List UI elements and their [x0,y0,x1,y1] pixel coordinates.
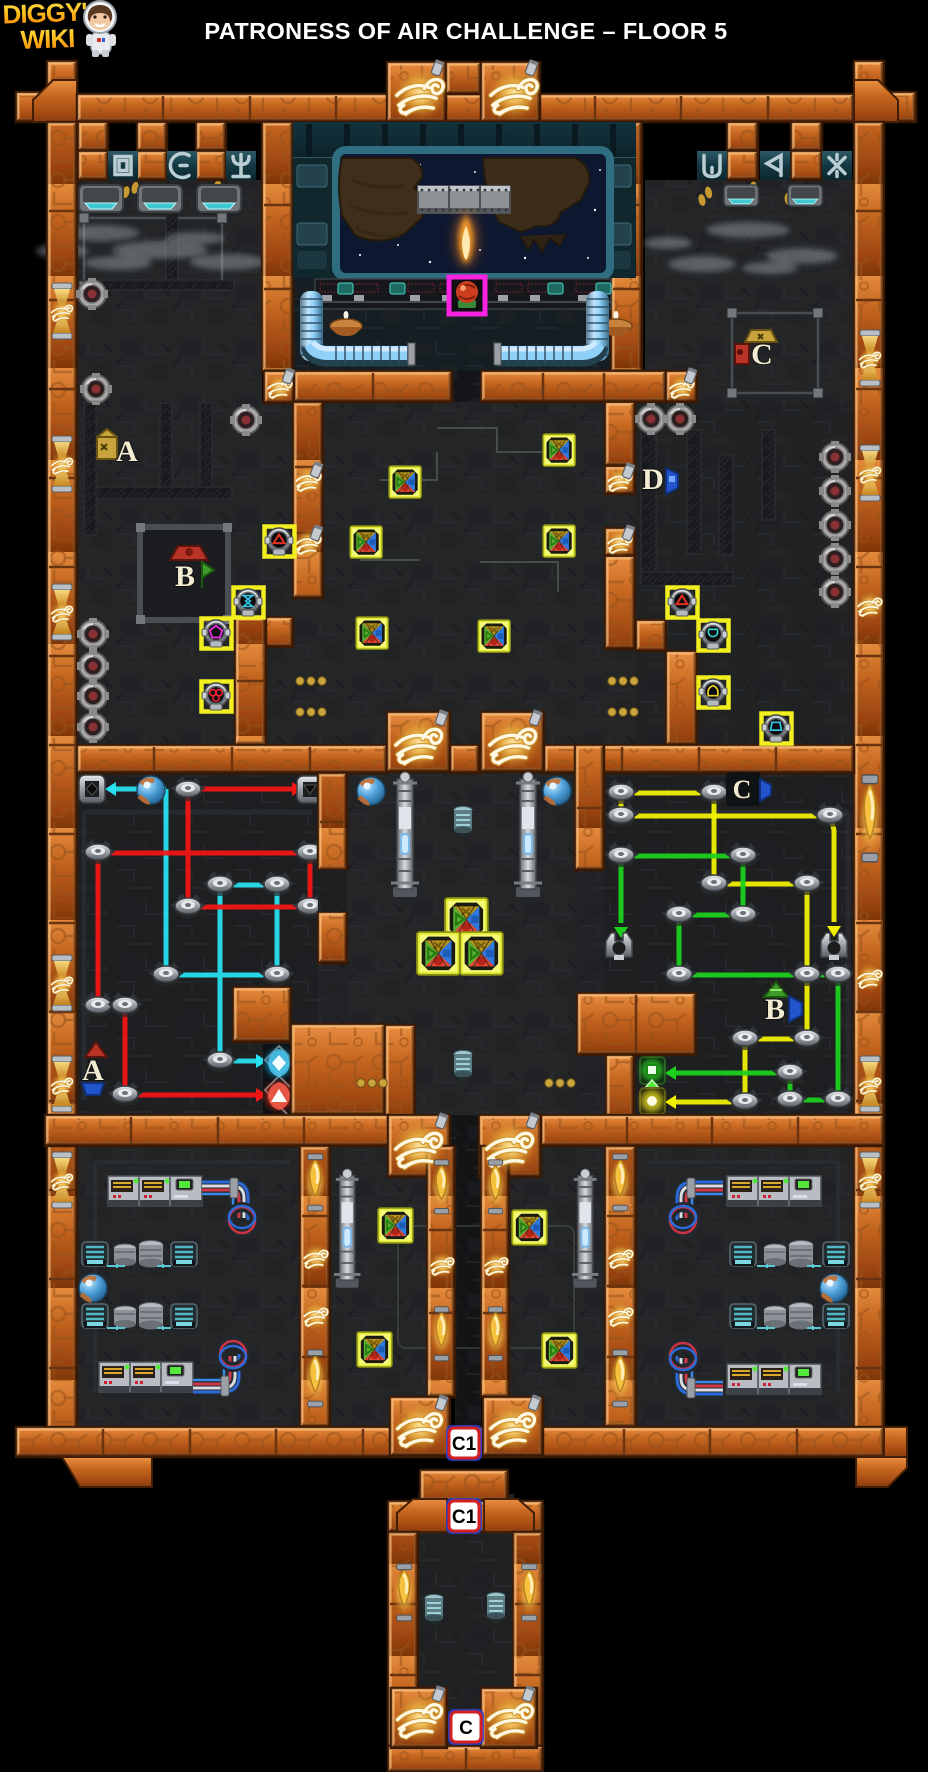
svg-text:C: C [751,338,773,371]
svg-text:C: C [733,775,752,804]
svg-text:C: C [459,1718,473,1739]
svg-text:B: B [175,560,195,593]
svg-text:A: A [116,435,138,468]
svg-text:C1: C1 [452,1434,477,1455]
svg-text:C1: C1 [452,1507,477,1528]
svg-text:WIKI: WIKI [20,23,75,55]
svg-text:PATRONESS OF AIR CHALLENGE – F: PATRONESS OF AIR CHALLENGE – FLOOR 5 [204,18,727,44]
svg-text:D: D [642,463,664,496]
svg-text:B: B [765,993,785,1026]
